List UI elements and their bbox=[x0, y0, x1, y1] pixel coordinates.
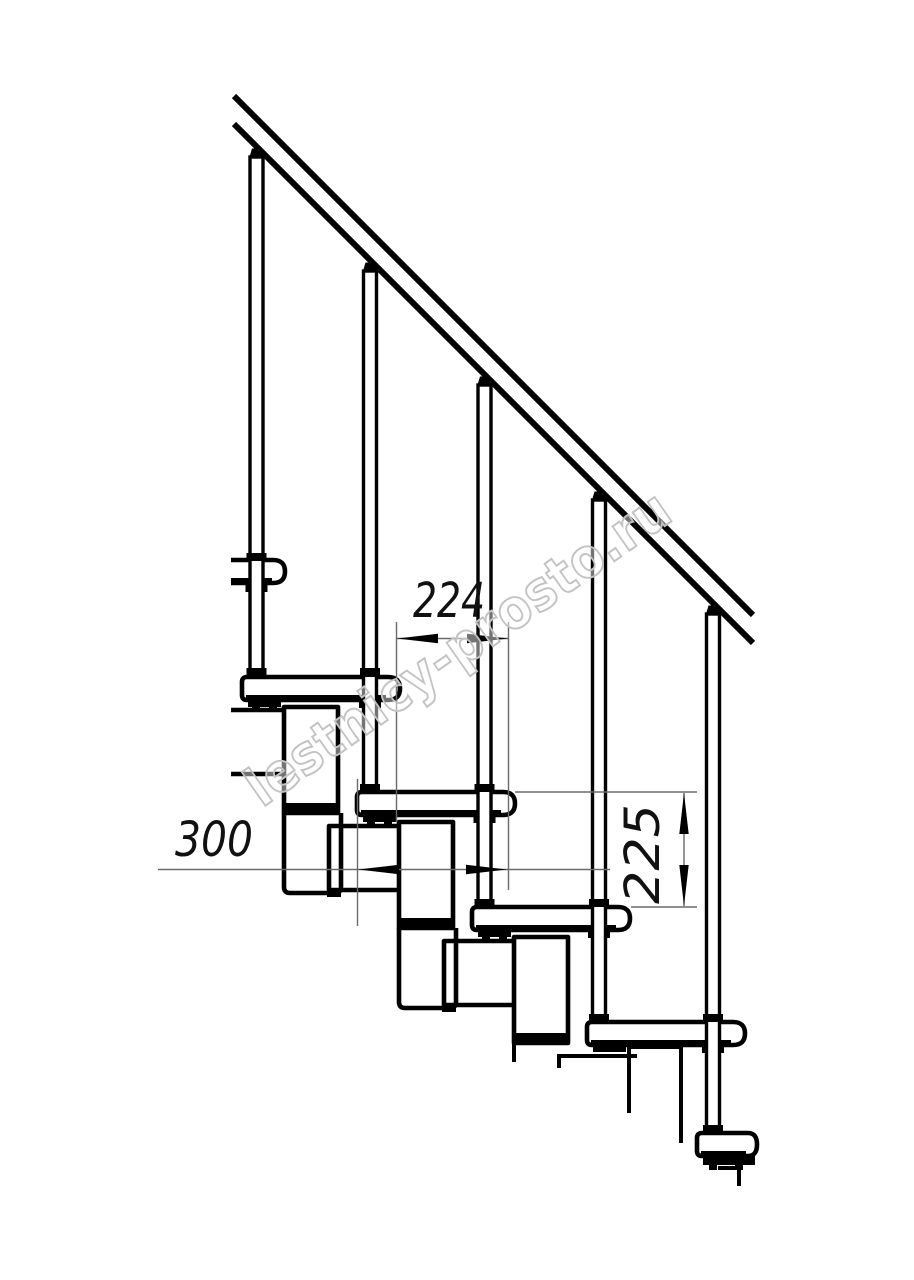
staircase-drawing-canvas: 224 300 225 lestnicy-prosto.ru bbox=[0, 0, 914, 1280]
dim-value-module-length: 300 bbox=[175, 812, 253, 868]
handrail-top-line bbox=[234, 96, 753, 615]
left-crop-mask bbox=[0, 545, 231, 788]
baluster-1 bbox=[247, 149, 267, 678]
handrail bbox=[234, 96, 753, 643]
staircase-drawing: 224 300 225 lestnicy-prosto.ru bbox=[0, 0, 914, 1280]
baluster-5 bbox=[703, 606, 723, 1134]
bottom-fade-steps bbox=[718, 1168, 741, 1186]
mounting-brackets bbox=[246, 584, 756, 1170]
handrail-bottom-line bbox=[234, 124, 753, 643]
dim-value-rise: 225 bbox=[615, 804, 671, 904]
watermark-text: lestnicy-prosto.ru bbox=[233, 477, 683, 818]
tread-5 bbox=[697, 1133, 757, 1156]
